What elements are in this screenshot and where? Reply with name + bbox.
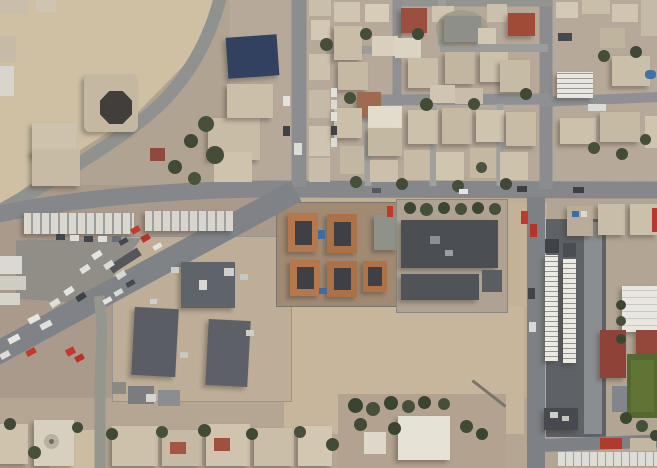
ne-building: [612, 4, 638, 22]
tree: [184, 134, 198, 148]
tree: [388, 422, 401, 435]
tree: [616, 334, 626, 344]
mosque-building: [398, 416, 450, 460]
tree: [616, 300, 626, 310]
tr-building: [478, 28, 496, 44]
roof-unit: [430, 236, 440, 244]
roof-unit: [246, 330, 254, 336]
tr-building: [500, 152, 528, 180]
tree: [198, 424, 211, 437]
tree: [396, 178, 408, 190]
tree: [476, 428, 488, 440]
tree: [420, 203, 433, 216]
tr-building: [408, 58, 438, 88]
car: [517, 186, 527, 192]
ne-building: [641, 0, 657, 36]
tree: [344, 92, 356, 104]
car: [459, 189, 468, 194]
tree: [476, 162, 487, 173]
tc-building-3: [309, 54, 330, 80]
tr-building: [487, 4, 507, 22]
tree: [366, 402, 380, 416]
white-unit-row: [558, 452, 657, 466]
office-block-annex: [482, 270, 502, 292]
tl-edge-building-4: [0, 66, 14, 96]
tr-building: [506, 112, 536, 146]
tree: [438, 202, 450, 214]
parked-cars-row: [588, 104, 606, 111]
se-building: [598, 204, 625, 235]
car: [528, 288, 535, 299]
tree: [500, 178, 512, 190]
tree: [106, 428, 118, 440]
tree: [404, 202, 416, 214]
tree: [28, 446, 41, 459]
tree: [520, 88, 532, 100]
tree: [460, 420, 473, 433]
edge-building: [0, 293, 20, 305]
tl-edge-building-1: [0, 0, 28, 14]
tr-building: [338, 62, 368, 90]
parked-car: [98, 236, 107, 242]
tree: [588, 142, 600, 154]
tree: [246, 428, 258, 440]
tr-building: [442, 108, 472, 144]
tl-beige-building: [227, 84, 273, 118]
ne-pool: [645, 70, 656, 79]
tree: [360, 28, 372, 40]
tree: [468, 98, 480, 110]
tr-red-roof-1: [508, 13, 535, 36]
tree: [402, 400, 415, 413]
tc-building-1: [309, 0, 331, 16]
ne-building: [600, 28, 625, 48]
tree: [418, 396, 431, 409]
ne-building: [556, 2, 578, 18]
ne-canopies: [557, 72, 593, 98]
tree: [640, 134, 651, 145]
tree: [650, 430, 657, 441]
tile-roof: [170, 442, 186, 454]
bottom-villa: [254, 428, 294, 466]
tl-villa-2: [32, 150, 80, 186]
tile-roof: [214, 438, 230, 451]
tree: [4, 418, 16, 430]
tr-building: [368, 128, 402, 156]
edge-building: [0, 276, 26, 290]
tr-white-deck: [368, 106, 402, 128]
tr-building: [476, 110, 504, 142]
tree: [630, 46, 642, 58]
small-white-building: [364, 432, 386, 454]
roof-unit: [171, 267, 179, 273]
pool: [319, 288, 327, 294]
parked-car: [331, 126, 337, 135]
east-drive-strip: [584, 222, 602, 434]
car: [529, 322, 536, 332]
tc-building-5: [309, 126, 330, 156]
tree: [420, 98, 433, 111]
tree: [620, 412, 632, 424]
shop-sign-white: [581, 211, 587, 217]
roof-unit: [224, 268, 234, 276]
tr-building: [334, 108, 362, 138]
red-curb-east: [652, 208, 657, 232]
tree: [348, 398, 363, 413]
roof-unit: [445, 250, 453, 256]
tree: [472, 202, 484, 214]
octagon-villa-core: [100, 91, 132, 124]
tree: [156, 426, 168, 438]
office-block-south: [401, 274, 479, 300]
tree: [294, 426, 306, 438]
canopy-row-2: [563, 259, 576, 363]
ne-building: [600, 112, 640, 142]
tl-red-roof-hut: [150, 148, 165, 161]
bottom-villa: [0, 424, 28, 464]
canopy-cap: [563, 243, 576, 257]
bottom-villa: [112, 426, 158, 466]
tree: [455, 203, 467, 215]
ne-building: [560, 118, 596, 144]
red-crosswalk: [600, 438, 622, 449]
tc-building-4: [309, 90, 330, 118]
pool: [318, 230, 325, 239]
tc-building-2: [311, 20, 330, 40]
red-road-mark: [530, 224, 537, 237]
red-road-mark: [521, 211, 528, 224]
tr-building: [370, 160, 398, 182]
red-brick-building-2: [636, 330, 657, 356]
tr-building: [408, 110, 438, 144]
tr-building: [436, 152, 464, 180]
edge-building: [0, 256, 22, 274]
tree: [616, 148, 628, 160]
tree: [598, 50, 610, 62]
white-hall-building: [622, 286, 657, 332]
orange-villa-court: [334, 268, 351, 290]
compound-building-2: [131, 307, 178, 377]
tr-building: [334, 26, 362, 60]
compound-gate: [112, 382, 126, 394]
roof-unit: [562, 416, 569, 421]
tree: [188, 172, 201, 185]
tr-gray-flat-roof: [444, 16, 481, 42]
tr-building: [340, 146, 364, 174]
parked-car: [331, 138, 337, 147]
tree: [412, 28, 424, 40]
canopy-row-1: [545, 255, 558, 361]
shop-sign-blue: [572, 211, 579, 217]
roof-unit: [180, 352, 188, 358]
tree: [354, 418, 367, 431]
tr-building: [395, 38, 421, 58]
compound-building-3: [205, 319, 250, 387]
tr-building: [445, 52, 475, 84]
car: [573, 187, 584, 193]
strip-mall-1: [24, 213, 134, 234]
tl-edge-building-2: [36, 0, 56, 12]
compound-shed: [158, 390, 180, 406]
ne-building: [612, 56, 650, 86]
orange-villa-court: [368, 267, 382, 286]
parked-car: [331, 88, 337, 97]
tree: [616, 316, 626, 326]
parked-car: [283, 96, 290, 106]
red-car: [387, 206, 393, 217]
parked-car: [56, 234, 65, 240]
parked-car: [70, 235, 79, 241]
tree: [384, 396, 398, 410]
strip-mall-2: [145, 211, 233, 231]
office-block-main: [401, 220, 498, 268]
satellite-map-view[interactable]: [0, 0, 657, 468]
roof-unit: [150, 299, 157, 304]
shop-building: [567, 206, 593, 236]
tc-building-6: [309, 158, 330, 182]
parked-car: [331, 112, 337, 121]
canopy-cap: [545, 239, 559, 253]
car: [372, 188, 381, 193]
orange-villa-court: [297, 267, 314, 289]
tree: [326, 438, 339, 451]
orange-villa-court: [334, 222, 351, 246]
compound-roof-mark: [199, 280, 207, 290]
tree: [350, 176, 362, 188]
roof-unit: [550, 412, 558, 418]
tr-building: [404, 150, 430, 180]
tree: [438, 398, 450, 410]
car: [294, 143, 302, 155]
ne-building: [582, 0, 610, 14]
tree: [168, 160, 182, 174]
tree: [198, 116, 214, 132]
parked-car: [84, 236, 93, 242]
tr-building: [430, 85, 455, 103]
tree: [72, 422, 83, 433]
parked-car: [283, 126, 290, 136]
tree: [206, 146, 224, 164]
roof-unit: [240, 274, 248, 280]
gray-annex: [374, 215, 397, 250]
parked-cars-row: [558, 33, 572, 41]
parked-car: [331, 100, 337, 109]
tl-edge-building-3: [0, 36, 16, 62]
tr-building: [365, 4, 389, 22]
roof-unit: [146, 394, 156, 402]
tree: [489, 203, 501, 215]
tree: [636, 420, 648, 432]
sports-field-inner: [631, 360, 654, 412]
blue-roof-building: [226, 34, 280, 78]
tree: [320, 38, 333, 51]
tr-building: [334, 2, 360, 22]
villa-round-dot: [49, 439, 54, 444]
orange-villa-court: [295, 221, 312, 245]
